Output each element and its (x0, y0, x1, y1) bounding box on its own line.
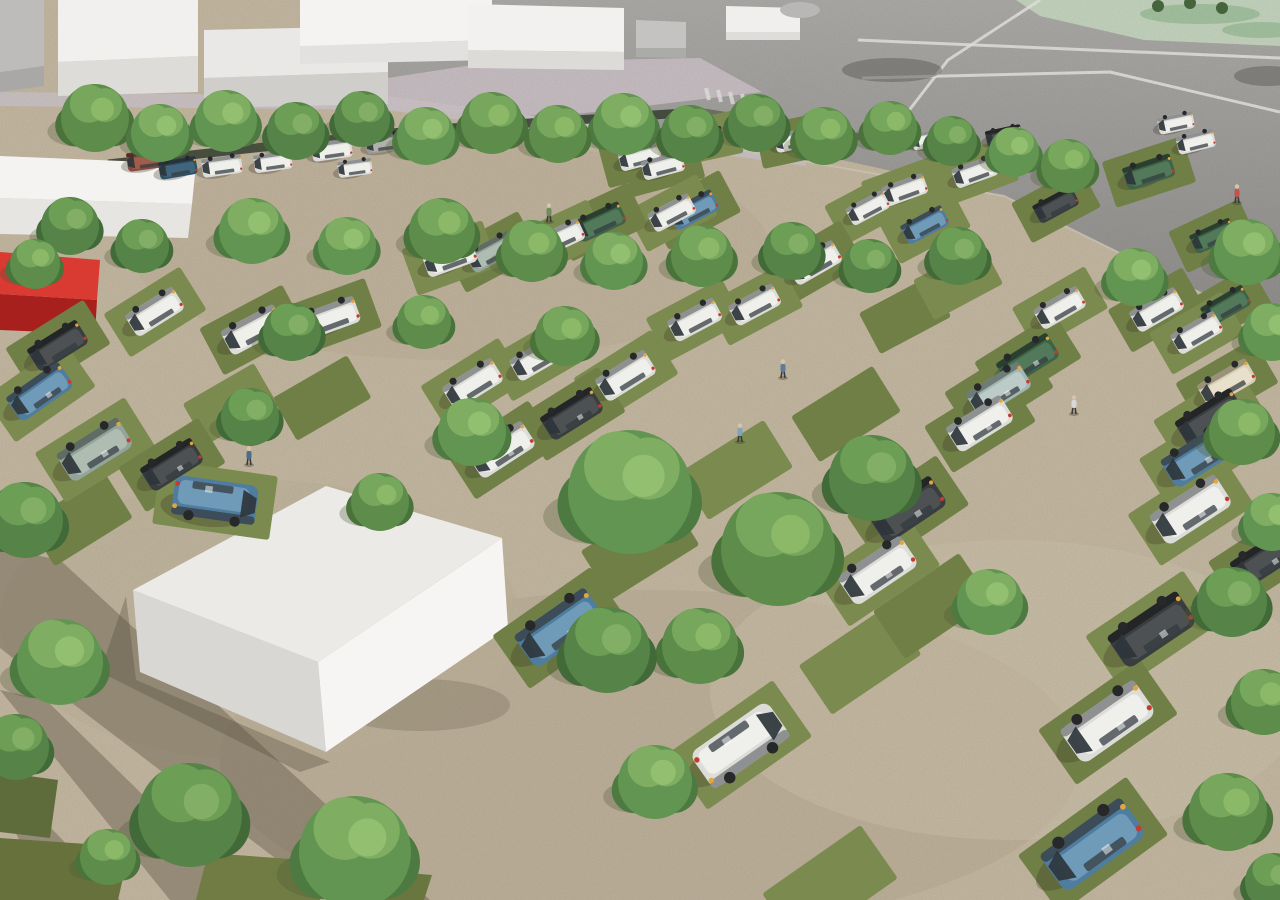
person-shadow (244, 463, 254, 467)
person-leg (1235, 196, 1236, 203)
person-body (1235, 189, 1240, 197)
person-leg (247, 458, 248, 465)
person-body (547, 208, 552, 216)
person-leg (1238, 196, 1239, 203)
person-head (1235, 184, 1239, 188)
tree-canopy-highlight (687, 117, 707, 137)
tree-canopy-highlight (602, 624, 631, 653)
person-leg (781, 371, 782, 378)
van-roof-vent (205, 486, 213, 494)
person-body (247, 451, 252, 459)
silo-tank (780, 2, 820, 18)
tree-canopy-highlight (293, 114, 313, 134)
tree-canopy-highlight (1238, 412, 1260, 434)
tree-canopy-highlight (695, 623, 721, 649)
tree-canopy-highlight (1132, 260, 1152, 280)
person-leg (784, 371, 785, 378)
tree-canopy-highlight (955, 239, 975, 259)
person-shadow (544, 220, 554, 224)
tree-canopy-highlight (438, 211, 460, 233)
person-body (738, 428, 743, 436)
person-head (247, 446, 251, 450)
building (636, 20, 686, 58)
tree-canopy-highlight (184, 784, 219, 819)
building-roof (636, 20, 686, 48)
tree-canopy-highlight (55, 636, 84, 665)
tree-canopy-highlight (887, 112, 905, 130)
tree-canopy-highlight (248, 211, 270, 233)
tree-canopy-highlight (348, 818, 386, 856)
building-roof (58, 0, 198, 62)
grass-square (0, 772, 58, 838)
building (0, 0, 44, 92)
person-leg (741, 435, 742, 442)
render-viewport (0, 0, 1280, 900)
tree-canopy-highlight (611, 244, 631, 264)
tree-canopy-highlight (222, 102, 243, 123)
tree-canopy-highlight (986, 582, 1008, 604)
person-leg (547, 215, 548, 222)
building-face (726, 32, 800, 40)
person-head (781, 359, 785, 363)
person-leg (1075, 407, 1076, 414)
scene-svg (0, 0, 1280, 900)
tree-canopy-highlight (623, 455, 665, 497)
tree-canopy-highlight (32, 249, 49, 266)
tree-canopy-highlight (949, 126, 966, 143)
building-face (636, 48, 686, 58)
tree-canopy-highlight (1065, 150, 1083, 168)
building-face (468, 50, 624, 70)
person-leg (550, 215, 551, 222)
tree-canopy-highlight (555, 117, 575, 137)
tree-canopy-highlight (247, 400, 267, 420)
tree-canopy-highlight (423, 119, 443, 139)
tree-canopy-highlight (157, 116, 177, 136)
tree-canopy-highlight (289, 315, 309, 335)
tree-canopy-highlight (344, 229, 364, 249)
tree-canopy-highlight (821, 119, 841, 139)
tree-canopy-highlight (67, 209, 87, 229)
person-head (738, 423, 742, 427)
person-leg (250, 458, 251, 465)
tree-canopy-highlight (12, 727, 34, 749)
person-leg (738, 435, 739, 442)
tree-canopy-highlight (528, 232, 549, 253)
tree-canopy-highlight (867, 250, 885, 268)
person-shadow (1232, 201, 1242, 205)
building-roof (468, 4, 624, 52)
tree-canopy-highlight (698, 237, 719, 258)
tree-canopy-highlight (867, 452, 896, 481)
tree-canopy-highlight (620, 105, 641, 126)
tree-canopy-highlight (754, 106, 774, 126)
tree-canopy-highlight (20, 497, 46, 523)
person-shadow (735, 440, 745, 444)
tree-canopy-highlight (1223, 789, 1250, 816)
person-shadow (1069, 412, 1079, 416)
tree-canopy-highlight (771, 515, 810, 554)
tree-canopy-highlight (1011, 137, 1028, 154)
tree-canopy-highlight (91, 98, 114, 121)
tree-canopy-highlight (1228, 581, 1252, 605)
tree-canopy-highlight (1243, 232, 1265, 254)
person-body (781, 364, 786, 372)
tree-canopy-highlight (359, 102, 378, 121)
person-leg (1072, 407, 1073, 414)
tree-canopy-highlight (789, 234, 809, 254)
person-head (1072, 395, 1076, 399)
person-shadow (778, 376, 788, 380)
tree-canopy-highlight (468, 412, 491, 435)
person-body (1072, 400, 1077, 408)
tree-canopy-highlight (488, 104, 509, 125)
building (300, 0, 492, 64)
building (58, 0, 198, 96)
tree-canopy-highlight (105, 840, 124, 859)
tree-canopy-highlight (421, 306, 439, 324)
person-head (547, 203, 551, 207)
tree-canopy-highlight (651, 760, 676, 785)
building-roof (0, 0, 44, 72)
tree-canopy-highlight (561, 318, 581, 338)
tree-canopy-highlight (139, 230, 157, 248)
building-roof (300, 0, 492, 46)
tree-canopy-highlight (377, 485, 397, 505)
building (468, 4, 624, 70)
